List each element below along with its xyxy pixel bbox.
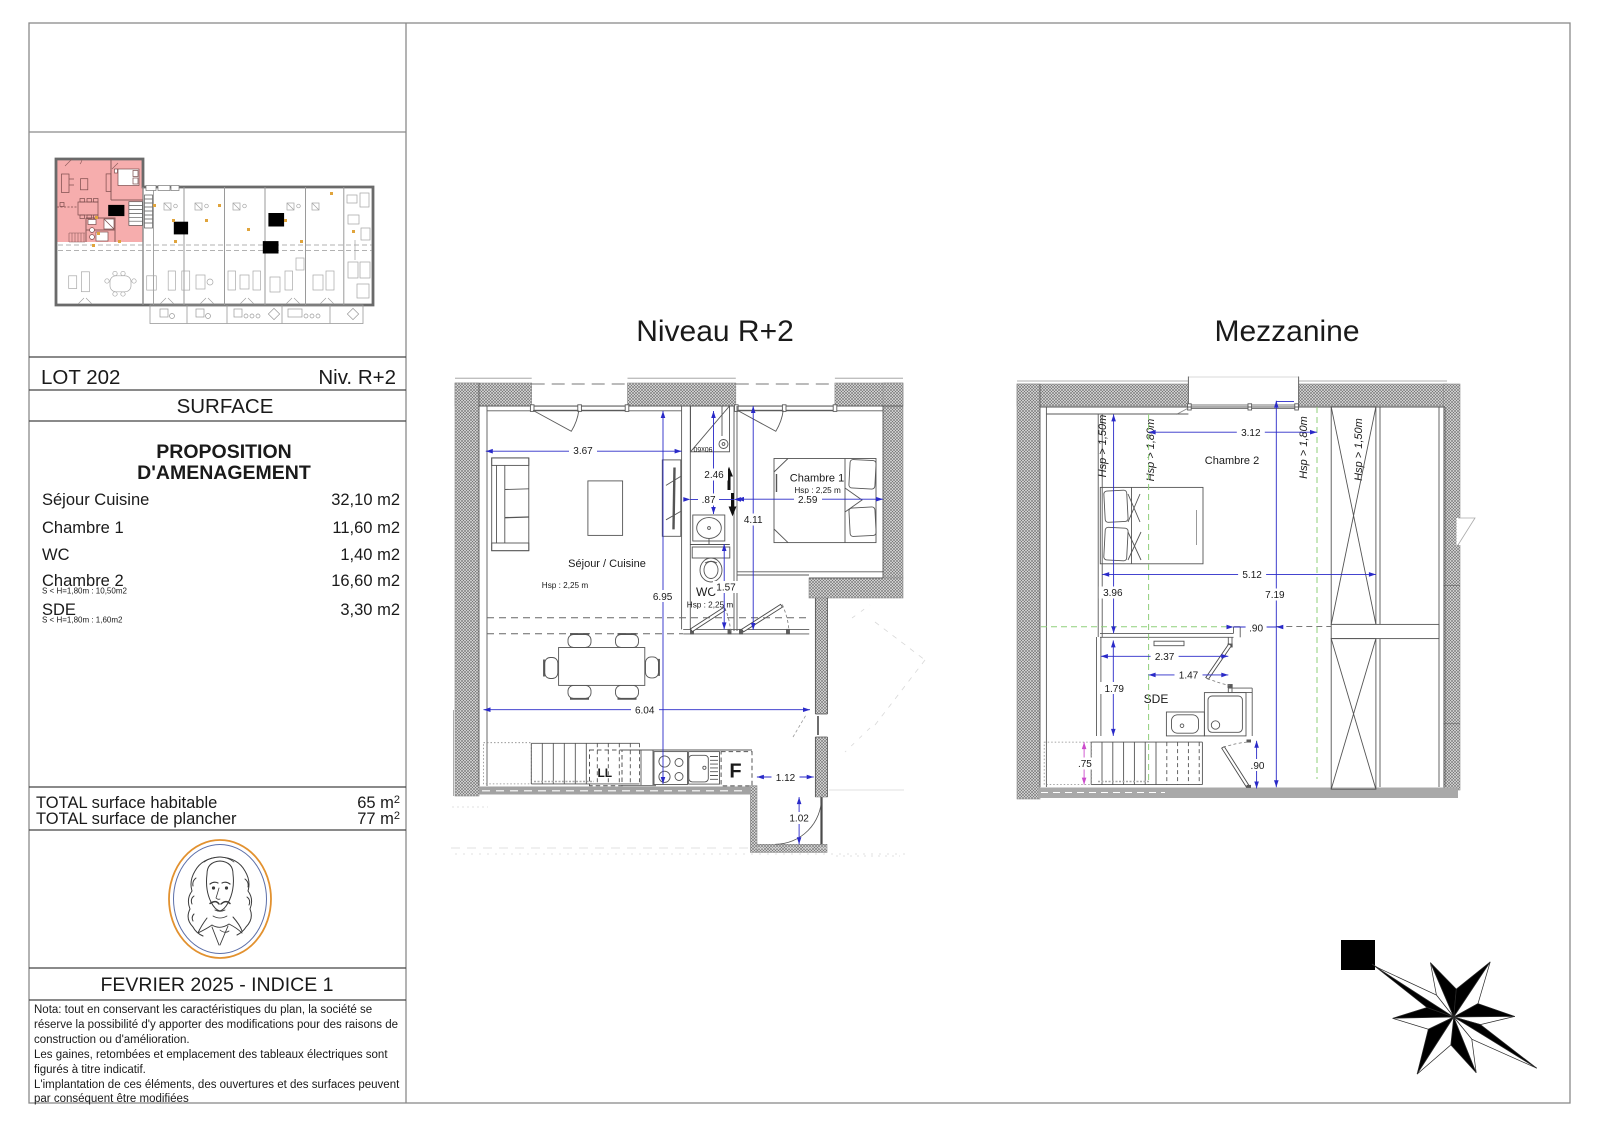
svg-text:PROPOSITION: PROPOSITION <box>156 441 291 463</box>
svg-text:TOTAL surface de plancher: TOTAL surface de plancher <box>36 810 237 828</box>
svg-text:Mezzanine: Mezzanine <box>1214 315 1359 348</box>
svg-text:2.59: 2.59 <box>798 495 818 506</box>
svg-text:1.57: 1.57 <box>716 583 736 594</box>
svg-text:4.11: 4.11 <box>744 515 763 526</box>
svg-text:S < H=1,80m : 10,50m2: S < H=1,80m : 10,50m2 <box>42 587 127 596</box>
svg-text:Hsp : 2,25 m: Hsp : 2,25 m <box>542 581 589 590</box>
svg-text:WC: WC <box>42 546 70 564</box>
svg-text:16,60 m2: 16,60 m2 <box>331 572 400 590</box>
svg-text:LOT 202: LOT 202 <box>41 366 120 389</box>
svg-text:1.47: 1.47 <box>1179 671 1199 682</box>
svg-text:3.12: 3.12 <box>1241 428 1261 439</box>
svg-text:.87: .87 <box>702 495 716 506</box>
svg-text:1.79: 1.79 <box>1104 684 1124 695</box>
svg-text:.75: .75 <box>1078 759 1092 770</box>
svg-text:LL: LL <box>597 766 612 780</box>
svg-text:Hsp > 1,50m: Hsp > 1,50m <box>1097 415 1109 478</box>
svg-text:SDE: SDE <box>1144 692 1169 706</box>
svg-text:77 m2: 77 m2 <box>357 810 400 828</box>
svg-text:32,10 m2: 32,10 m2 <box>331 491 400 509</box>
svg-text:3,30 m2: 3,30 m2 <box>340 601 400 619</box>
svg-text:Chambre 1: Chambre 1 <box>790 473 844 485</box>
svg-text:Chambre 2: Chambre 2 <box>1205 455 1259 467</box>
svg-text:Niv. R+2: Niv. R+2 <box>318 366 396 389</box>
svg-text:Séjour Cuisine: Séjour Cuisine <box>42 491 149 509</box>
svg-text:1,40 m2: 1,40 m2 <box>340 546 400 564</box>
svg-text:Les gaines, retombées et empla: Les gaines, retombées et emplacement des… <box>34 1049 388 1061</box>
svg-text:90x60: 90x60 <box>693 445 712 452</box>
svg-text:SURFACE: SURFACE <box>177 395 274 418</box>
svg-text:6.04: 6.04 <box>635 706 655 717</box>
svg-text:figurés à titre indicatif.: figurés à titre indicatif. <box>34 1064 146 1076</box>
svg-text:réserve la possibilité d'y app: réserve la possibilité d'y apporter des … <box>34 1019 398 1031</box>
svg-text:FEVRIER 2025 - INDICE 1: FEVRIER 2025 - INDICE 1 <box>101 974 334 996</box>
svg-text:Hsp : 2,25 m: Hsp : 2,25 m <box>687 601 734 610</box>
svg-text:Séjour / Cuisine: Séjour / Cuisine <box>568 558 646 570</box>
svg-text:7.19: 7.19 <box>1265 590 1285 601</box>
svg-text:Hsp > 1,50m: Hsp > 1,50m <box>1353 418 1365 481</box>
svg-text:1.12: 1.12 <box>776 773 796 784</box>
svg-text:.90: .90 <box>1249 624 1263 635</box>
svg-text:2.46: 2.46 <box>704 470 724 481</box>
svg-text:L'implantation de ces éléments: L'implantation de ces éléments, des ouve… <box>34 1079 400 1091</box>
svg-text:Hsp > 1,80m: Hsp > 1,80m <box>1145 419 1157 482</box>
svg-text:Hsp > 1,80m: Hsp > 1,80m <box>1298 416 1310 479</box>
svg-text:6.95: 6.95 <box>653 592 673 603</box>
svg-text:Chambre 1: Chambre 1 <box>42 519 124 537</box>
svg-text:3.67: 3.67 <box>573 446 593 457</box>
svg-text:F: F <box>729 761 741 783</box>
svg-text:.90: .90 <box>1251 761 1265 772</box>
svg-text:S < H=1,80m : 1,60m2: S < H=1,80m : 1,60m2 <box>42 616 123 625</box>
svg-text:Nota: tout en conservant les c: Nota: tout en conservant les caractérist… <box>34 1004 372 1016</box>
svg-text:Niveau R+2: Niveau R+2 <box>636 315 794 348</box>
svg-text:5.12: 5.12 <box>1242 570 1262 581</box>
svg-text:construction ou d'amélioration: construction ou d'amélioration. <box>34 1034 190 1046</box>
svg-text:11,60 m2: 11,60 m2 <box>332 519 400 537</box>
svg-text:D'AMENAGEMENT: D'AMENAGEMENT <box>137 462 311 484</box>
svg-text:2.37: 2.37 <box>1155 652 1175 663</box>
svg-text:3.96: 3.96 <box>1103 588 1123 599</box>
svg-text:1.02: 1.02 <box>789 814 809 825</box>
svg-text:par conséquent être modifiées: par conséquent être modifiées <box>34 1093 189 1105</box>
